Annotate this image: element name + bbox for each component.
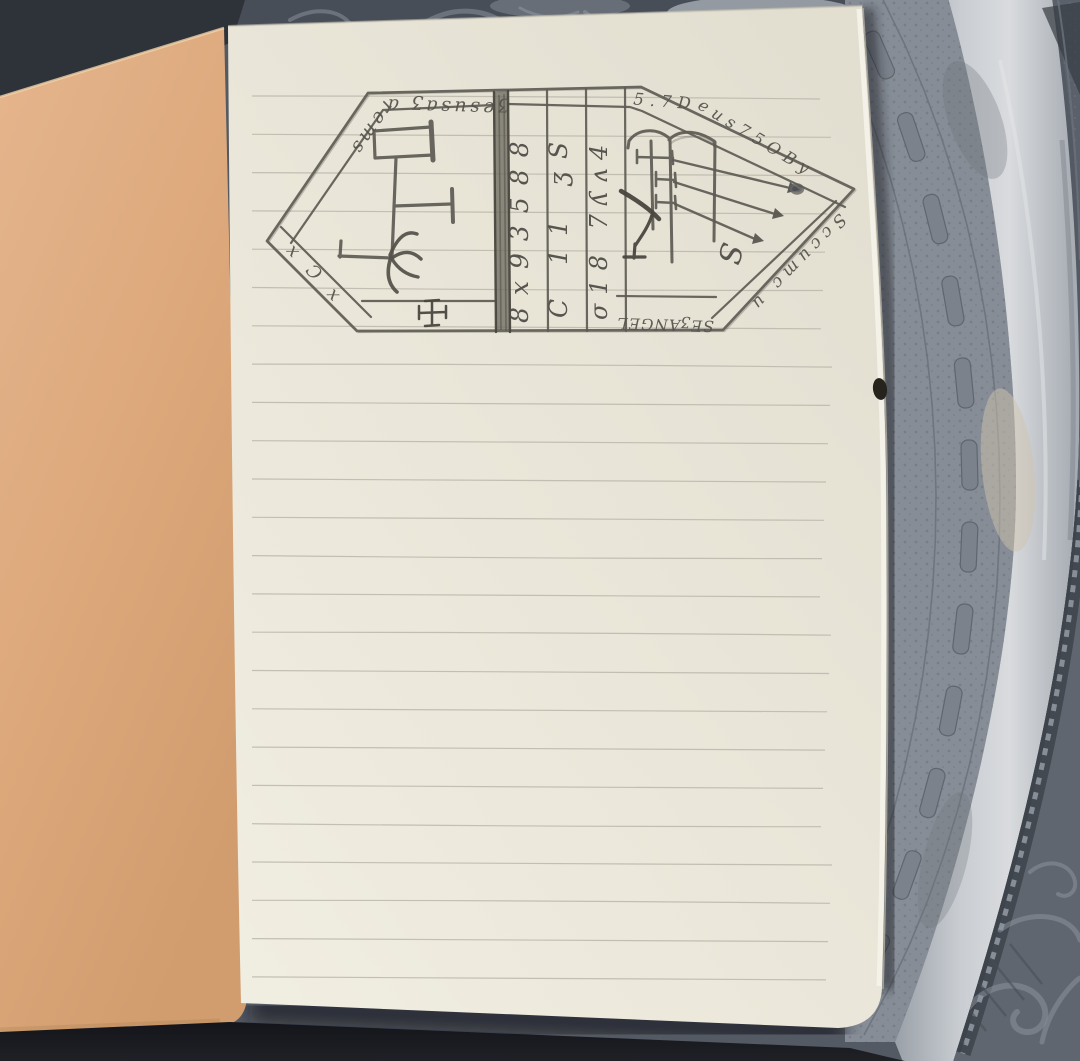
sigil-columns: 8x93588 C 11 ʒS σ18 7ʎʌ4 bbox=[505, 129, 613, 323]
tray-rib bbox=[960, 522, 978, 573]
tray-rib bbox=[961, 440, 978, 490]
sigil-column-2: C 11 ʒS bbox=[544, 129, 573, 318]
photo-canvas: S ʒesusaʒ arems 5.7Deus75OBy Sccumc u SE… bbox=[0, 0, 1080, 1061]
notebook-photo: S ʒesusaʒ arems 5.7Deus75OBy Sccumc u SE… bbox=[0, 0, 1080, 1061]
arrowhead-smudge bbox=[791, 185, 803, 194]
sigil-column-3: σ18 7ʎʌ4 bbox=[585, 136, 613, 320]
sigil-column-1: 8x93588 bbox=[505, 129, 534, 323]
notebook-cover bbox=[0, 28, 247, 1036]
